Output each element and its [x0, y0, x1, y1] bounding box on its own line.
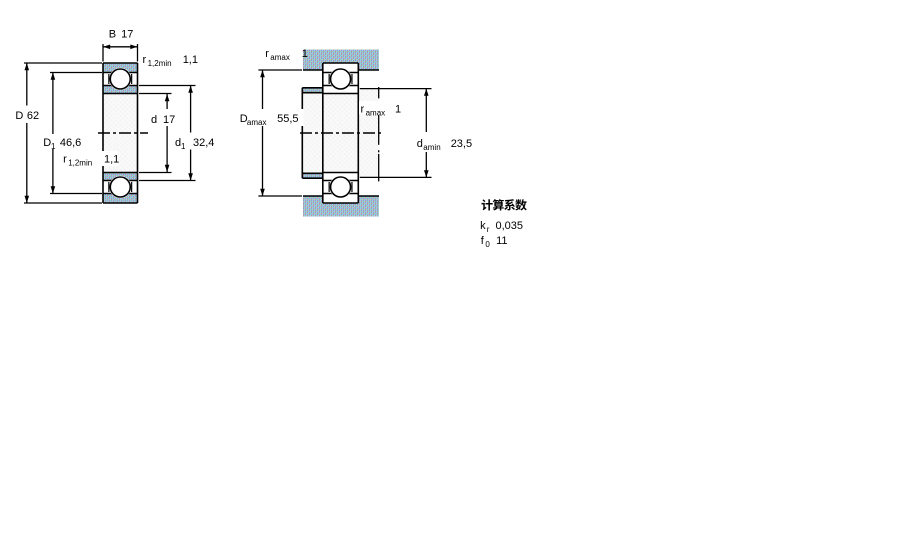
svg-text:1,1: 1,1 — [104, 154, 119, 166]
svg-text:amax: amax — [366, 109, 386, 118]
svg-text:r: r — [143, 54, 147, 66]
svg-text:23,5: 23,5 — [451, 138, 472, 150]
svg-text:1,2min: 1,2min — [148, 59, 172, 68]
svg-text:17: 17 — [121, 29, 133, 41]
svg-text:32,4: 32,4 — [193, 137, 214, 149]
svg-text:1,2min: 1,2min — [68, 159, 92, 168]
svg-text:r: r — [63, 154, 67, 166]
svg-text:d: d — [151, 114, 157, 126]
svg-text:r: r — [361, 104, 365, 116]
svg-text:d: d — [417, 138, 423, 150]
svg-text:46,6: 46,6 — [60, 137, 81, 149]
svg-text:1: 1 — [395, 104, 401, 116]
svg-text:17: 17 — [163, 114, 175, 126]
svg-text:1: 1 — [181, 142, 186, 151]
svg-text:B: B — [109, 29, 116, 41]
svg-text:amin: amin — [423, 143, 440, 152]
svg-text:k: k — [480, 220, 486, 232]
svg-text:r: r — [265, 48, 269, 60]
svg-text:55,5: 55,5 — [277, 113, 298, 125]
svg-text:0,035: 0,035 — [496, 220, 524, 232]
svg-text:1,1: 1,1 — [183, 54, 198, 66]
svg-text:11: 11 — [496, 235, 507, 247]
svg-text:0: 0 — [485, 240, 490, 249]
svg-text:1: 1 — [302, 48, 308, 60]
svg-text:1: 1 — [51, 142, 56, 151]
svg-text:62: 62 — [27, 110, 39, 122]
svg-text:D: D — [15, 110, 23, 122]
svg-text:amax: amax — [247, 118, 267, 127]
svg-text:r: r — [487, 225, 490, 234]
svg-text:amax: amax — [270, 53, 290, 62]
